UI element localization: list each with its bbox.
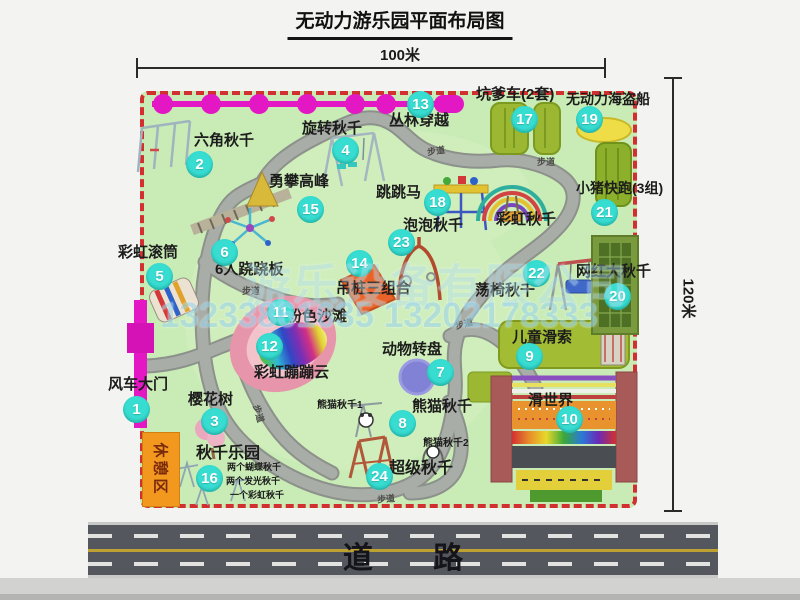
attraction-24-label: 超级秋千 xyxy=(389,461,453,477)
attraction-11-badge: 11 xyxy=(267,299,294,326)
attraction-12-label: 彩虹蹦蹦云 xyxy=(254,365,329,380)
width-dimension-label: 100米 xyxy=(355,44,445,65)
rest-area: 休憩区 xyxy=(142,432,180,507)
attraction-15-badge: 15 xyxy=(297,196,324,223)
attraction-15-label: 勇攀高峰 xyxy=(269,174,329,189)
ground-strip xyxy=(0,578,800,594)
width-dimension-tick-right xyxy=(604,58,606,78)
trail-label: 步道 xyxy=(426,143,446,158)
attraction-14-badge: 14 xyxy=(346,250,373,277)
trail-label: 步道 xyxy=(376,491,395,506)
width-dimension-line xyxy=(137,67,605,69)
attraction-23-badge: 23 xyxy=(388,229,415,256)
attraction-8-label: 熊猫秋千 xyxy=(412,399,472,414)
rest-area-label: 休憩区 xyxy=(151,442,172,496)
attraction-4-badge: 4 xyxy=(332,137,359,164)
height-dimension-tick-top xyxy=(664,77,682,79)
attraction-18-label: 跳跳马 xyxy=(376,185,421,200)
attraction-3-badge: 3 xyxy=(201,408,228,435)
attraction-21-label: 小猪快跑(3组) xyxy=(576,181,663,195)
attraction-9-badge: 9 xyxy=(516,343,543,370)
road-label: 道 路 xyxy=(88,533,718,577)
swing-paradise-detail-1: 两个蝴蝶秋千 xyxy=(227,463,281,472)
attraction-21-badge: 21 xyxy=(591,199,618,226)
attraction-24-badge: 24 xyxy=(366,463,393,490)
attraction-8-badge: 8 xyxy=(389,410,416,437)
attraction-7-label: 动物转盘 xyxy=(382,342,442,357)
attraction-16-badge: 16 xyxy=(196,465,223,492)
swing-paradise-detail-2: 两个发光秋千 xyxy=(226,477,280,486)
attraction-20-label: 网红大秋千 xyxy=(576,264,651,279)
attraction-10-badge: 10 xyxy=(556,406,583,433)
attraction-11-label: 粉色沙滩 xyxy=(287,309,347,324)
attraction-2-badge: 2 xyxy=(186,151,213,178)
attraction-1-label: 风车大门 xyxy=(108,377,168,392)
attraction-16-label: 秋千乐园 xyxy=(196,446,260,462)
attraction-12-badge: 12 xyxy=(256,333,283,360)
trail-label: 步道 xyxy=(242,284,260,297)
attraction-7-badge: 7 xyxy=(427,359,454,386)
width-dimension-tick-left xyxy=(136,58,138,78)
attraction-18-badge: 18 xyxy=(424,189,451,216)
attraction-19-label: 无动力海盗船 xyxy=(566,92,650,106)
road: 道 路 xyxy=(88,522,718,578)
attraction-22-label: 荡椅秋千 xyxy=(475,283,535,298)
attraction-5-badge: 5 xyxy=(146,263,173,290)
park-layout-screenshot: 休憩区 步道 步道 步道 步道 步道 步道 风车大门 六角秋千 樱花树 旋转秋千… xyxy=(0,0,800,600)
attraction-5-label: 彩虹滚筒 xyxy=(118,245,178,260)
attraction-22-badge: 22 xyxy=(523,260,550,287)
rainbow-swing-label: 彩虹秋千 xyxy=(496,212,556,227)
attraction-20-badge: 20 xyxy=(604,283,631,310)
attraction-19-badge: 19 xyxy=(576,106,603,133)
swing-paradise-detail-3: 一个彩虹秋千 xyxy=(230,491,284,500)
page-title: 无动力游乐园平面布局图 xyxy=(287,6,512,40)
attraction-2-label: 六角秋千 xyxy=(194,133,254,148)
height-dimension-label: 120米 xyxy=(679,261,700,337)
attraction-3-label: 樱花树 xyxy=(188,392,233,407)
attraction-17-badge: 17 xyxy=(511,106,538,133)
attraction-9-label: 儿童滑索 xyxy=(512,330,572,345)
panda-swing-1-label: 熊猫秋千1 xyxy=(317,401,363,411)
attraction-23-label: 泡泡秋千 xyxy=(403,218,463,233)
trail-label: 步道 xyxy=(537,155,555,168)
height-dimension-line xyxy=(672,78,674,512)
attraction-4-label: 旋转秋千 xyxy=(302,121,362,136)
image-bottom-edge xyxy=(0,594,800,600)
height-dimension-tick-bottom xyxy=(664,510,682,512)
attraction-14-label: 吊桩三组合 xyxy=(336,281,411,296)
attraction-6-badge: 6 xyxy=(211,239,238,266)
attraction-13-badge: 13 xyxy=(407,91,434,118)
panda-swing-2-label: 熊猫秋千2 xyxy=(423,439,469,449)
attraction-1-badge: 1 xyxy=(123,396,150,423)
attraction-17-label: 坑爹车(2套) xyxy=(476,87,554,102)
